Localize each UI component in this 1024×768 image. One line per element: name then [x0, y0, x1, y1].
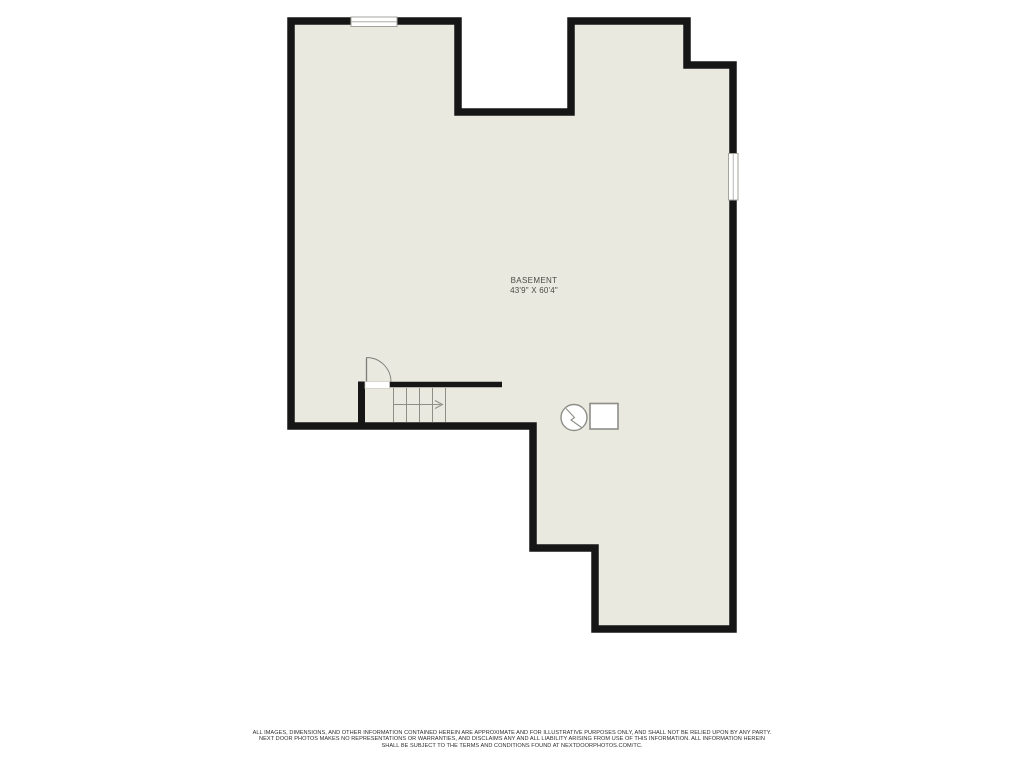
furnace-icon: [590, 404, 618, 430]
room-name: BASEMENT: [510, 276, 558, 286]
water-heater-icon: [561, 405, 587, 431]
room-label: BASEMENT 43'9" X 60'4": [510, 276, 558, 296]
floor-plan-page: BASEMENT 43'9" X 60'4" ALL IMAGES, DIMEN…: [0, 0, 1024, 768]
floor-outline: [291, 21, 733, 629]
window-right-icon: [729, 154, 739, 201]
disclaimer-line-3: SHALL BE SUBJECT TO THE TERMS AND CONDIT…: [0, 743, 1024, 749]
door-opening: [365, 382, 390, 389]
window-top-icon: [351, 17, 397, 27]
disclaimer-text: ALL IMAGES, DIMENSIONS, AND OTHER INFORM…: [0, 730, 1024, 749]
room-dimensions: 43'9" X 60'4": [510, 286, 558, 296]
floor-plan-drawing: [0, 0, 1024, 768]
